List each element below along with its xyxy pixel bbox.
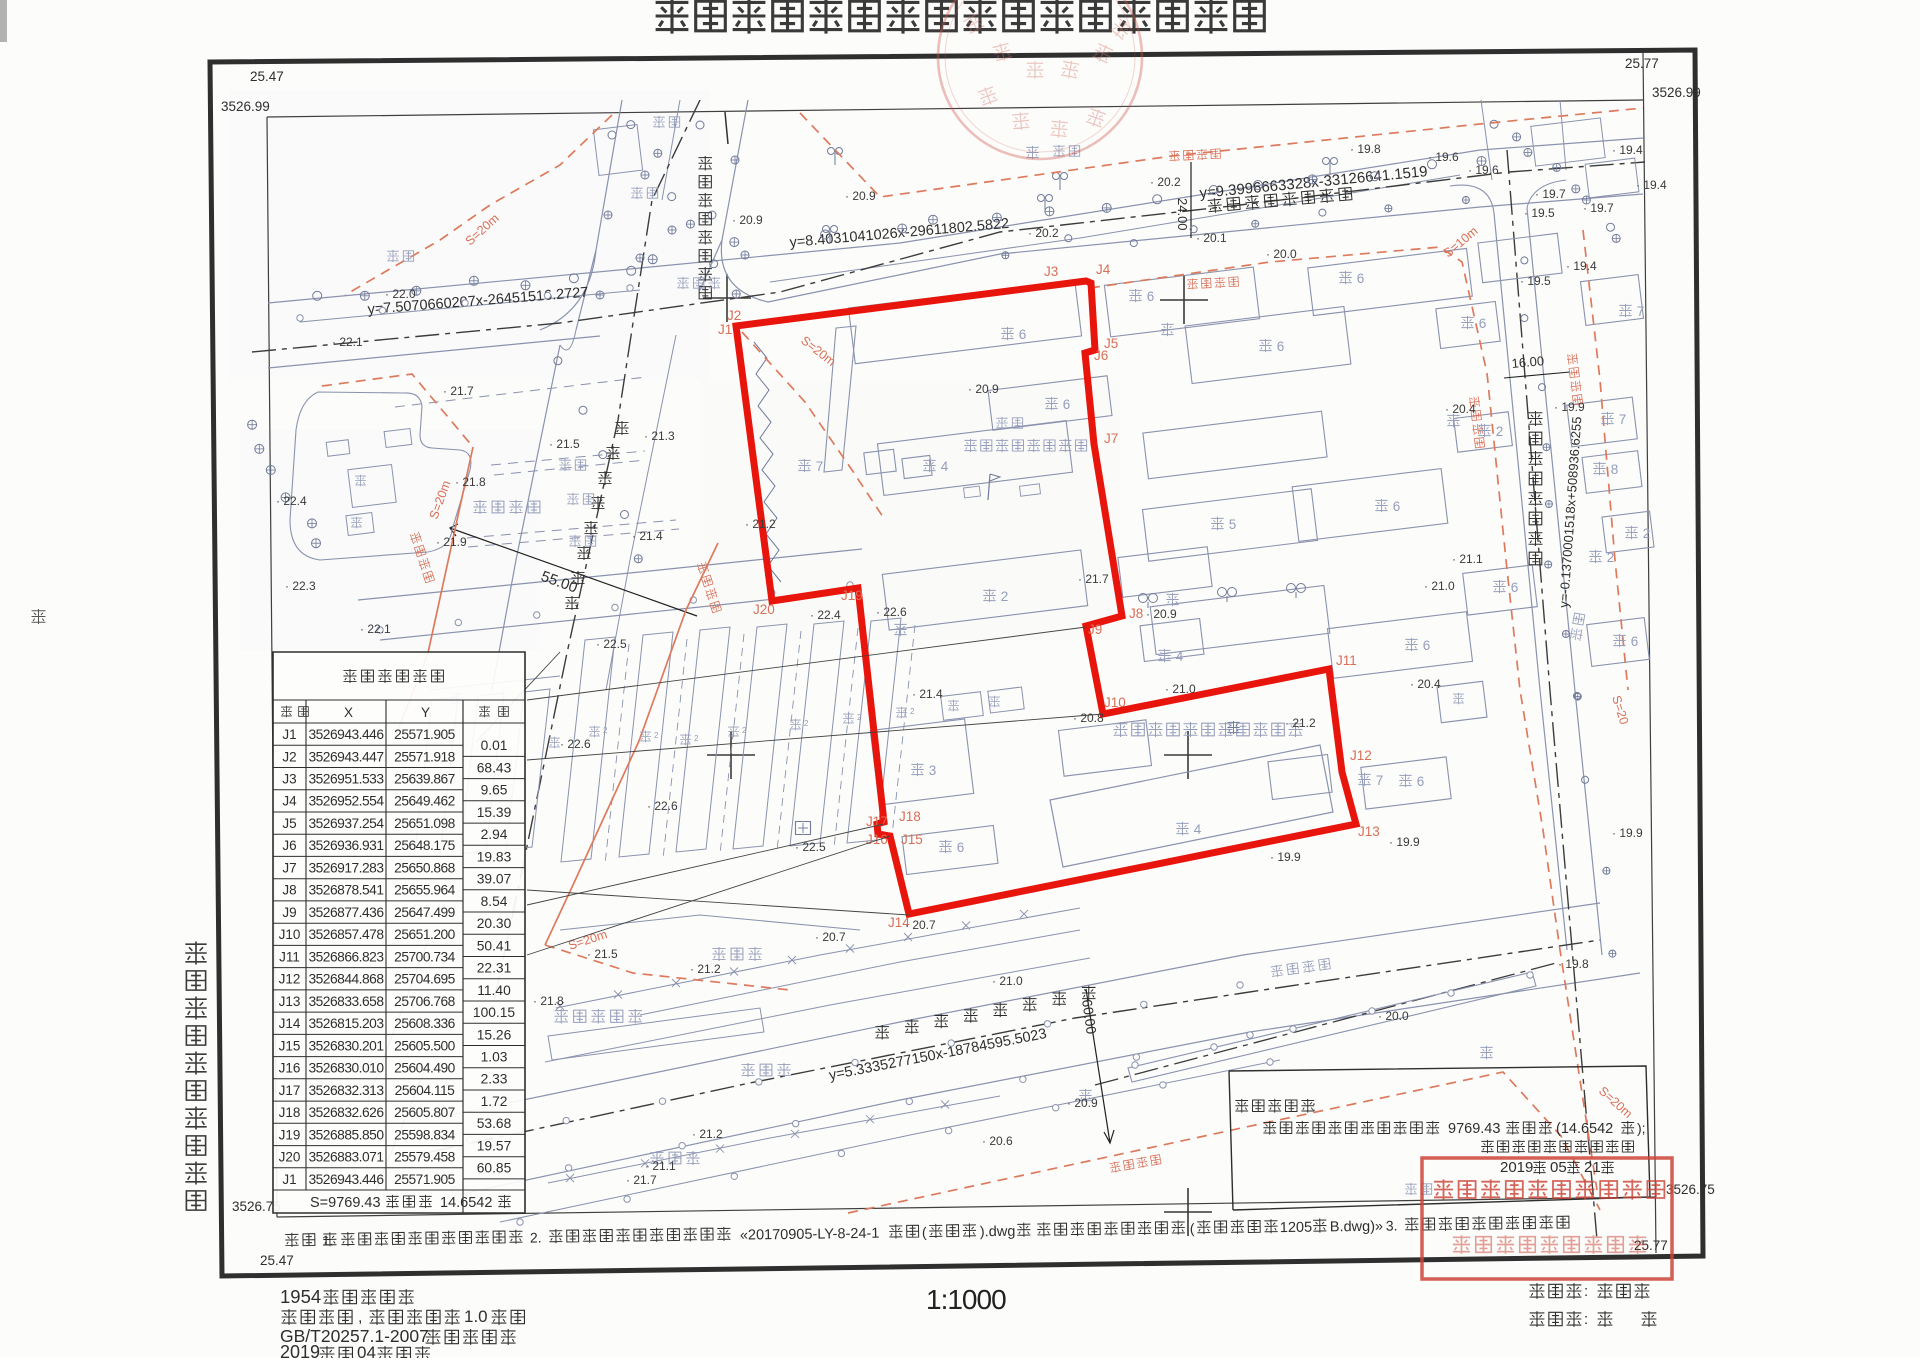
- svg-text::: :: [1312, 1098, 1316, 1114]
- svg-text:J12: J12: [1350, 748, 1372, 763]
- svg-text:· 22.3: · 22.3: [285, 579, 316, 593]
- svg-text:25605.500: 25605.500: [394, 1038, 456, 1053]
- svg-text:J9: J9: [282, 905, 296, 920]
- svg-text:25.77: 25.77: [1625, 56, 1659, 71]
- svg-text:25706.768: 25706.768: [394, 994, 456, 1009]
- svg-text:2: 2: [857, 713, 862, 722]
- svg-text:· 22.5: · 22.5: [596, 637, 627, 651]
- svg-text:6: 6: [1417, 774, 1425, 789]
- svg-text:0.01: 0.01: [481, 738, 508, 753]
- svg-text:J19: J19: [841, 588, 863, 603]
- svg-text:J15: J15: [279, 1038, 301, 1053]
- svg-text:16.00: 16.00: [1511, 353, 1545, 371]
- svg-text:· 21.8: · 21.8: [533, 994, 564, 1008]
- svg-text:6: 6: [1019, 327, 1027, 342]
- svg-text:J2: J2: [282, 749, 296, 764]
- svg-text:J5: J5: [282, 816, 296, 831]
- svg-text:2.33: 2.33: [481, 1072, 508, 1087]
- svg-text:· 22.1: · 22.1: [360, 622, 391, 636]
- svg-text:· 21.7: · 21.7: [443, 384, 474, 398]
- svg-text:5: 5: [1229, 517, 1237, 532]
- svg-text:3526917.283: 3526917.283: [308, 861, 384, 876]
- svg-text:4: 4: [1176, 649, 1184, 664]
- svg-text:1.0: 1.0: [464, 1307, 488, 1326]
- svg-text:7: 7: [1619, 412, 1627, 427]
- svg-text:21: 21: [1584, 1159, 1601, 1176]
- svg-text:· 22.6: · 22.6: [647, 799, 678, 813]
- svg-text:J6: J6: [1094, 348, 1108, 363]
- svg-text:3526.99: 3526.99: [221, 99, 270, 114]
- svg-text:J16: J16: [866, 832, 888, 847]
- svg-text:· 21.0: · 21.0: [1165, 682, 1196, 696]
- svg-text:6: 6: [957, 840, 965, 855]
- svg-text:J13: J13: [1358, 824, 1380, 839]
- svg-text:· 19.9: · 19.9: [1389, 835, 1420, 849]
- svg-text:8: 8: [1611, 462, 1619, 477]
- svg-text:· 21.5: · 21.5: [549, 437, 580, 451]
- svg-text:3526.99: 3526.99: [1652, 85, 1701, 100]
- svg-text:· 20.9: · 20.9: [732, 213, 763, 227]
- svg-text:24.00: 24.00: [1175, 198, 1190, 231]
- svg-text:· 19.6: · 19.6: [1428, 150, 1459, 164]
- svg-text:· 20.7: · 20.7: [815, 930, 846, 944]
- svg-text:1:1000: 1:1000: [926, 1284, 1006, 1315]
- svg-text:2: 2: [804, 719, 809, 728]
- svg-text:2: 2: [742, 726, 747, 735]
- svg-text:J7: J7: [282, 861, 296, 876]
- svg-text:J18: J18: [899, 809, 921, 824]
- svg-text:9769.43: 9769.43: [1448, 1121, 1500, 1137]
- svg-text:J2: J2: [727, 308, 741, 323]
- svg-text:· 19.5: · 19.5: [1524, 206, 1555, 220]
- svg-text:· 20.9: · 20.9: [1146, 607, 1177, 621]
- svg-text:· 20.9: · 20.9: [1067, 1096, 1098, 1110]
- svg-text:3526936.931: 3526936.931: [308, 838, 383, 853]
- svg-text:3526830.010: 3526830.010: [308, 1061, 384, 1076]
- svg-text:· 19.5: · 19.5: [1520, 274, 1551, 288]
- svg-text:7: 7: [1376, 773, 1384, 788]
- svg-text:25700.734: 25700.734: [394, 949, 456, 964]
- svg-text:11.40: 11.40: [477, 983, 511, 998]
- svg-text:(: (: [922, 1224, 927, 1240]
- svg-text:3526885.850: 3526885.850: [308, 1127, 384, 1142]
- svg-text:15.26: 15.26: [477, 1027, 512, 1042]
- svg-text:1.: 1.: [322, 1232, 334, 1248]
- svg-text:J4: J4: [282, 794, 297, 809]
- svg-text:· 22.6: · 22.6: [876, 605, 907, 619]
- svg-text:2: 2: [603, 726, 608, 735]
- svg-text:· 22.4: · 22.4: [276, 494, 307, 508]
- svg-text:J1: J1: [282, 727, 296, 742]
- svg-text:B.dwg)»: B.dwg)»: [1330, 1219, 1383, 1236]
- svg-text:50.41: 50.41: [477, 938, 512, 953]
- svg-text:3526878.541: 3526878.541: [308, 883, 383, 898]
- svg-text:25571.905: 25571.905: [394, 727, 456, 742]
- svg-text:53.68: 53.68: [477, 1116, 512, 1131]
- svg-text:J17: J17: [279, 1083, 301, 1098]
- svg-text:4: 4: [941, 459, 949, 474]
- svg-text:J15: J15: [901, 832, 923, 847]
- svg-text:· 19.9: · 19.9: [1270, 850, 1301, 864]
- svg-text:);: );: [1637, 1120, 1646, 1136]
- svg-text:25605.807: 25605.807: [394, 1105, 455, 1120]
- svg-text:· 21.4: · 21.4: [912, 687, 943, 701]
- svg-text:20.30: 20.30: [477, 916, 512, 931]
- svg-text:2: 2: [1496, 424, 1504, 439]
- svg-text:25648.175: 25648.175: [394, 838, 456, 853]
- svg-text:8.54: 8.54: [481, 894, 508, 909]
- svg-text:· 20.0: · 20.0: [1266, 247, 1297, 261]
- svg-text:(: (: [1190, 1220, 1195, 1236]
- svg-text:3526832.313: 3526832.313: [308, 1083, 384, 1098]
- svg-text:2.94: 2.94: [481, 827, 508, 842]
- svg-text:· 21.2: · 21.2: [745, 517, 776, 531]
- svg-text:25571.905: 25571.905: [394, 1172, 456, 1187]
- svg-text:J11: J11: [1336, 653, 1357, 668]
- svg-text:25651.200: 25651.200: [394, 927, 456, 942]
- svg-text:6: 6: [1631, 634, 1639, 649]
- svg-text:1.03: 1.03: [481, 1050, 508, 1065]
- svg-text:· 20.4: · 20.4: [1410, 677, 1441, 691]
- svg-text:25.77: 25.77: [1634, 1238, 1668, 1253]
- svg-text:6: 6: [1147, 289, 1155, 304]
- svg-text:25704.695: 25704.695: [394, 972, 456, 987]
- svg-text:J10: J10: [279, 927, 301, 942]
- svg-text:3526830.201: 3526830.201: [308, 1038, 383, 1053]
- svg-text:· 21.4: · 21.4: [632, 529, 663, 543]
- svg-text:25650.868: 25650.868: [394, 861, 456, 876]
- svg-text:· 22.5: · 22.5: [795, 840, 826, 854]
- svg-text:3526833.658: 3526833.658: [308, 994, 384, 1009]
- svg-text:60.85: 60.85: [477, 1161, 512, 1176]
- svg-text:· 22.6: · 22.6: [560, 737, 591, 751]
- svg-text:· 19.9: · 19.9: [1554, 400, 1585, 414]
- svg-text:J14: J14: [279, 1016, 301, 1031]
- svg-text:· 19.9: · 19.9: [1612, 826, 1643, 840]
- svg-text:6: 6: [1479, 316, 1487, 331]
- svg-text:J13: J13: [279, 994, 301, 1009]
- svg-text:S=9769.43: S=9769.43: [310, 1195, 381, 1211]
- svg-text:3526877.436: 3526877.436: [308, 905, 384, 920]
- svg-text:3.: 3.: [1386, 1217, 1398, 1233]
- svg-text:J3: J3: [1044, 264, 1058, 279]
- svg-text:· 19.8: · 19.8: [1350, 142, 1381, 156]
- svg-text:25649.462: 25649.462: [394, 794, 455, 809]
- svg-text:«20170905-LY-8-24-1: «20170905-LY-8-24-1: [740, 1226, 880, 1244]
- svg-text:3526844.868: 3526844.868: [308, 972, 384, 987]
- svg-text:· 20.6: · 20.6: [982, 1134, 1013, 1148]
- svg-text:· 20.7: · 20.7: [905, 918, 936, 932]
- svg-text:· 21.2: · 21.2: [692, 1127, 723, 1141]
- svg-text:15.39: 15.39: [477, 805, 512, 820]
- svg-text:Y: Y: [421, 705, 430, 720]
- svg-text:05: 05: [1550, 1159, 1567, 1176]
- svg-text:2: 2: [1607, 550, 1615, 565]
- svg-text:04: 04: [357, 1343, 376, 1358]
- svg-text:· 21.5: · 21.5: [587, 947, 618, 961]
- svg-text:2: 2: [654, 731, 659, 740]
- svg-text:4: 4: [1194, 822, 1202, 837]
- svg-text:6: 6: [1423, 638, 1431, 653]
- svg-text:· 19.4: · 19.4: [1566, 259, 1597, 273]
- svg-text:19.83: 19.83: [477, 849, 512, 864]
- svg-text:· 19.8: · 19.8: [1558, 957, 1589, 971]
- svg-text:J12: J12: [279, 972, 301, 987]
- svg-text:· 22.0: · 22.0: [385, 287, 416, 301]
- svg-text:3526883.071: 3526883.071: [308, 1150, 383, 1165]
- svg-text:3526943.446: 3526943.446: [308, 727, 384, 742]
- svg-text:· 20.2: · 20.2: [1028, 226, 1059, 240]
- svg-text:· 21.7: · 21.7: [1078, 572, 1109, 586]
- svg-text:J10: J10: [1104, 695, 1126, 710]
- svg-text:J17: J17: [866, 814, 888, 829]
- svg-text:J4: J4: [1096, 262, 1111, 277]
- svg-text:· 19.6: · 19.6: [1468, 163, 1499, 177]
- svg-text:2: 2: [910, 707, 915, 716]
- svg-text:J20: J20: [279, 1150, 301, 1165]
- svg-text:J8: J8: [1129, 606, 1143, 621]
- svg-text:· 20.4: · 20.4: [1445, 402, 1476, 416]
- svg-text:25604.490: 25604.490: [394, 1061, 456, 1076]
- svg-text:J3: J3: [282, 772, 296, 787]
- svg-text:25651.098: 25651.098: [394, 816, 456, 831]
- svg-text:J9: J9: [1088, 622, 1102, 637]
- svg-text:6: 6: [1063, 397, 1071, 412]
- svg-text:3526937.254: 3526937.254: [308, 816, 384, 831]
- svg-text:· 21.2: · 21.2: [690, 962, 721, 976]
- svg-text:· 20.1: · 20.1: [1196, 231, 1227, 245]
- svg-text:).dwg: ).dwg: [980, 1224, 1016, 1240]
- svg-text:2019: 2019: [1500, 1159, 1533, 1176]
- svg-text::: :: [1584, 1283, 1588, 1300]
- svg-text:· 21.9: · 21.9: [436, 535, 467, 549]
- svg-text:· 20.9: · 20.9: [845, 189, 876, 203]
- svg-text:25.47: 25.47: [260, 1253, 294, 1268]
- svg-text:39.07: 39.07: [477, 872, 512, 887]
- svg-text:· 21.8: · 21.8: [455, 475, 486, 489]
- svg-text:· 19.4: · 19.4: [1636, 178, 1667, 192]
- svg-text:6: 6: [1277, 339, 1285, 354]
- svg-text:25655.964: 25655.964: [394, 883, 456, 898]
- svg-text:· 21.2: · 21.2: [1285, 716, 1316, 730]
- svg-text:25639.867: 25639.867: [394, 772, 455, 787]
- svg-text:J18: J18: [279, 1105, 301, 1120]
- svg-text:7: 7: [816, 459, 824, 474]
- svg-text:2: 2: [694, 734, 699, 743]
- svg-text:J11: J11: [279, 949, 300, 964]
- svg-text:6: 6: [1511, 580, 1519, 595]
- svg-text:14.6542: 14.6542: [440, 1195, 492, 1211]
- svg-text:J1: J1: [718, 322, 732, 337]
- svg-text:19.57: 19.57: [477, 1139, 512, 1154]
- svg-text:2.: 2.: [530, 1229, 542, 1245]
- svg-text:J20: J20: [753, 602, 775, 617]
- svg-text:J6: J6: [282, 838, 296, 853]
- svg-text:· 21.0: · 21.0: [1424, 579, 1455, 593]
- svg-text::: :: [1584, 1311, 1588, 1328]
- svg-text:3526943.446: 3526943.446: [308, 1172, 384, 1187]
- svg-text:· 21.3: · 21.3: [644, 429, 675, 443]
- svg-text:· 19.4: · 19.4: [1612, 143, 1643, 157]
- svg-text:100.15: 100.15: [473, 1005, 516, 1020]
- svg-text:1954: 1954: [280, 1286, 321, 1307]
- svg-text:· 21.7: · 21.7: [626, 1173, 657, 1187]
- svg-text:9.65: 9.65: [481, 783, 508, 798]
- svg-text:· 21.1: · 21.1: [1452, 552, 1483, 566]
- svg-text:3526943.447: 3526943.447: [308, 749, 383, 764]
- svg-text:· 22.1: · 22.1: [332, 335, 363, 349]
- svg-text:3526951.533: 3526951.533: [308, 772, 384, 787]
- svg-text:25.47: 25.47: [250, 69, 284, 84]
- svg-text:2019: 2019: [280, 1342, 320, 1358]
- svg-text:68.43: 68.43: [477, 760, 512, 775]
- svg-text:3: 3: [929, 763, 937, 778]
- svg-text:3526952.554: 3526952.554: [308, 794, 384, 809]
- svg-text:J7: J7: [1104, 431, 1118, 446]
- svg-text:2: 2: [1643, 526, 1651, 541]
- svg-text:· 20.9: · 20.9: [968, 382, 999, 396]
- svg-text:J8: J8: [282, 883, 296, 898]
- svg-text:2: 2: [1001, 589, 1009, 604]
- svg-text:25571.918: 25571.918: [394, 749, 456, 764]
- svg-text:6: 6: [1393, 499, 1401, 514]
- svg-text:3526815.203: 3526815.203: [308, 1016, 384, 1031]
- svg-text:,: ,: [358, 1309, 362, 1326]
- svg-text:25579.458: 25579.458: [394, 1150, 456, 1165]
- svg-text:X: X: [344, 705, 353, 720]
- svg-text:J19: J19: [279, 1127, 301, 1142]
- svg-text:1205: 1205: [1280, 1220, 1312, 1236]
- svg-text:25598.834: 25598.834: [394, 1127, 456, 1142]
- svg-text:J1: J1: [282, 1172, 296, 1187]
- svg-text:25604.115: 25604.115: [395, 1083, 456, 1098]
- svg-text:· 20.0: · 20.0: [1378, 1009, 1409, 1023]
- svg-text:7: 7: [1637, 304, 1645, 319]
- svg-text:· 22.4: · 22.4: [810, 608, 841, 622]
- svg-text:· 19.7: · 19.7: [1535, 187, 1566, 201]
- svg-text:25647.499: 25647.499: [394, 905, 456, 920]
- svg-text:J16: J16: [279, 1061, 301, 1076]
- svg-text:· 20.8: · 20.8: [1073, 711, 1104, 725]
- svg-text:6: 6: [1357, 271, 1365, 286]
- svg-text:3526832.626: 3526832.626: [308, 1105, 384, 1120]
- svg-text:· 20.2: · 20.2: [1150, 175, 1181, 189]
- svg-text:(14.6542: (14.6542: [1556, 1121, 1613, 1137]
- svg-text:· 19.7: · 19.7: [1583, 201, 1614, 215]
- svg-text:25608.336: 25608.336: [394, 1016, 456, 1031]
- svg-text:3526866.823: 3526866.823: [308, 949, 384, 964]
- svg-text:22.31: 22.31: [477, 961, 512, 976]
- svg-text:1.72: 1.72: [481, 1094, 508, 1109]
- svg-text:· 21.1: · 21.1: [645, 1159, 676, 1173]
- svg-text:· 21.0: · 21.0: [992, 974, 1023, 988]
- svg-text:3526857.478: 3526857.478: [308, 927, 384, 942]
